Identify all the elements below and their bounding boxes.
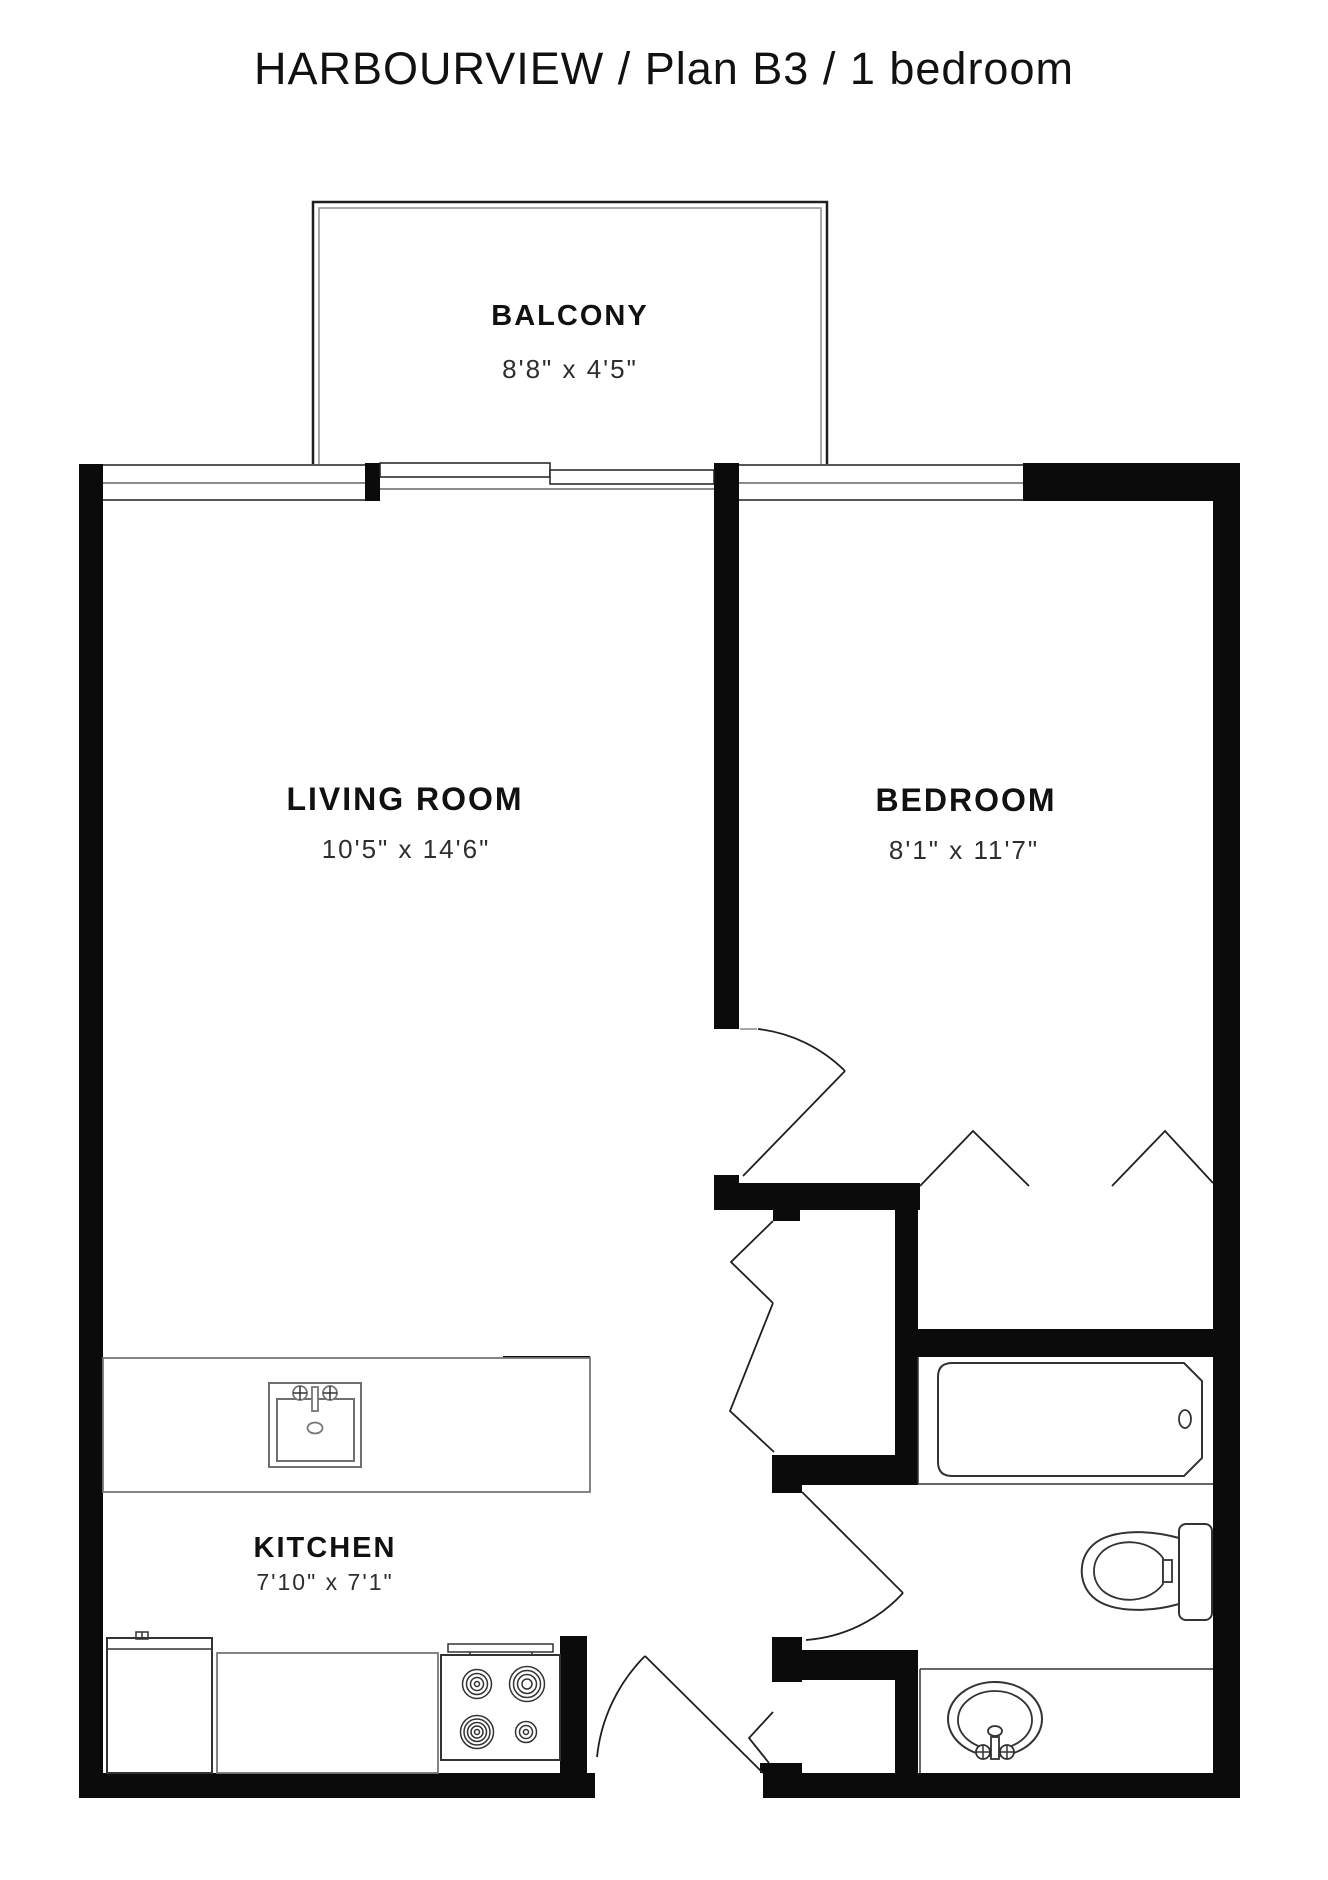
balcony-outline [313, 202, 827, 464]
balcony-sliding-door-icon [380, 463, 714, 489]
bottom-wall-left [79, 1773, 595, 1798]
window-post [365, 463, 380, 501]
bedroom-door-jamb [714, 1175, 739, 1210]
bedroom-closet-wall [739, 1183, 920, 1210]
kitchen-fixtures [103, 1358, 590, 1773]
kitchen-side-wall [560, 1636, 587, 1773]
hall-closet-stub [773, 1210, 800, 1221]
kitchen-dimensions: 7'10" x 7'1" [256, 1569, 393, 1595]
refrigerator-icon [107, 1632, 212, 1773]
balcony-label: BALCONY [491, 300, 648, 332]
bath-upper-wall [802, 1455, 918, 1485]
entry-door-icon [597, 1656, 773, 1773]
entry-side-panel [749, 1712, 773, 1763]
hall-closet-right-wall [895, 1210, 918, 1485]
toilet-bowl-inner [1094, 1542, 1163, 1600]
floor-plan-svg: HARBOURVIEW / Plan B3 / 1 bedroom BALCON… [0, 0, 1328, 1880]
bathtub-icon [918, 1357, 1213, 1484]
bath-lower-jamb [772, 1637, 802, 1682]
bath-left-lower-wall [895, 1680, 918, 1773]
toilet-neck [1163, 1560, 1172, 1582]
kitchen-sink-icon [269, 1383, 361, 1467]
bathroom-fixtures [918, 1357, 1213, 1773]
entry-stub [760, 1763, 802, 1773]
bedroom-closet-bifold-icon [920, 1131, 1213, 1186]
bathroom-sink-icon [948, 1682, 1042, 1759]
kitchen-counter-icon [217, 1653, 438, 1773]
bathroom-top-wall [918, 1329, 1240, 1357]
stove-icon [441, 1644, 560, 1760]
page-title: HARBOURVIEW / Plan B3 / 1 bedroom [254, 43, 1074, 94]
bedroom-label: BEDROOM [875, 782, 1056, 818]
toilet-tank [1179, 1524, 1212, 1620]
toilet-icon [1082, 1524, 1212, 1620]
bedroom-window-icon [739, 465, 1023, 500]
bath-upper-jamb [772, 1455, 802, 1493]
windows [103, 463, 1023, 500]
living-room-dimensions: 10'5" x 14'6" [322, 834, 491, 864]
bedroom-dimensions: 8'1" x 11'7" [889, 835, 1039, 865]
kitchen-label: KITCHEN [254, 1532, 397, 1564]
living-bedroom-wall [714, 463, 739, 1029]
bath-lower-wall [802, 1650, 918, 1680]
walls [79, 463, 1240, 1798]
living-room-label: LIVING ROOM [286, 781, 523, 817]
hall-closet-bifold-icon [730, 1221, 774, 1452]
left-wall [79, 464, 103, 1798]
bedroom-door-icon [740, 1029, 845, 1176]
balcony: BALCONY 8'8" x 4'5" [313, 202, 827, 464]
bottom-wall-right [763, 1773, 1240, 1798]
floor-plan-page: HARBOURVIEW / Plan B3 / 1 bedroom BALCON… [0, 0, 1328, 1880]
balcony-outline-inner [319, 208, 821, 464]
living-room-window-icon [103, 465, 365, 500]
balcony-dimensions: 8'8" x 4'5" [502, 354, 638, 384]
bathroom-door-icon [802, 1492, 903, 1640]
top-right-wall [1023, 463, 1240, 501]
right-wall [1213, 463, 1240, 1798]
